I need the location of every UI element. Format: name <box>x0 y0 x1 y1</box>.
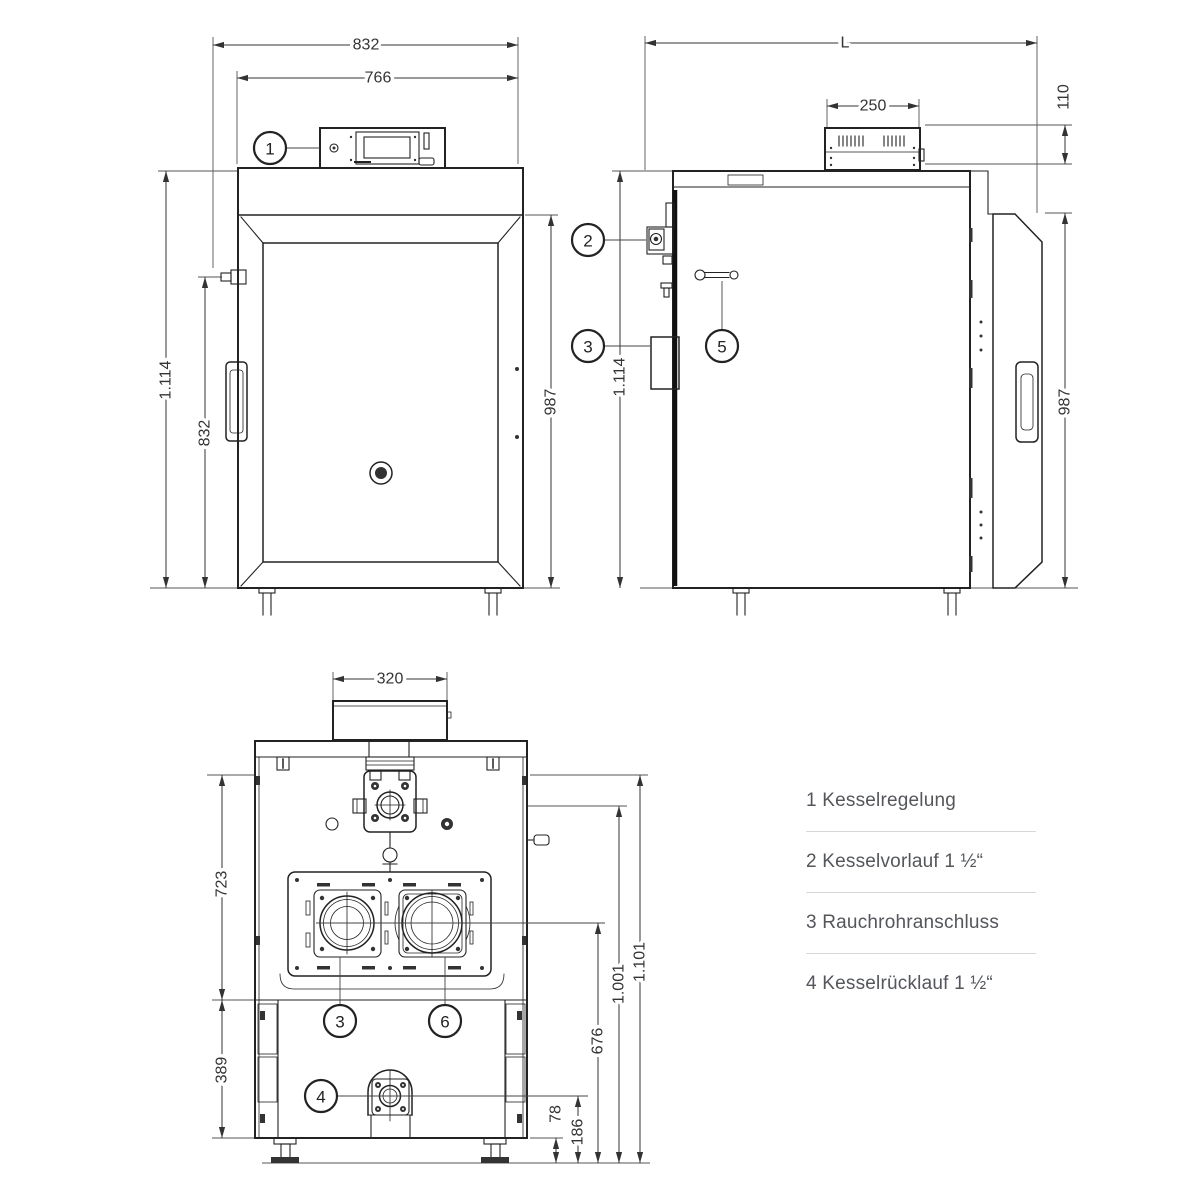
side-control-box <box>825 128 924 170</box>
front-pipe-stub-cap <box>221 273 231 281</box>
side-door-profile <box>993 214 1042 588</box>
legend-item-kesselvorlauf: 2 Kesselvorlauf 1 ½“ <box>806 832 1036 892</box>
callout-6-port: 6 <box>429 1005 461 1037</box>
callout-3-rauchrohr-rear: 3 <box>324 1005 356 1037</box>
callout-5-tuergriff: 5 <box>706 330 738 362</box>
svg-text:2: 2 <box>583 232 592 251</box>
dim-rear-ruecklauf-height: 186 <box>570 1119 587 1146</box>
dim-front-height-total: 1.114 <box>158 360 175 399</box>
side-bolt <box>661 283 672 297</box>
dim-side-control-width: 250 <box>860 98 887 115</box>
side-view: L 250 110 1.114 987 2 3 5 <box>572 35 1078 616</box>
callout-3-rauchrohr-side: 3 <box>572 330 604 362</box>
side-feet <box>733 588 960 615</box>
side-body-outline <box>673 171 970 588</box>
dim-rear-total-height: 1.101 <box>632 942 649 982</box>
front-body-outline <box>238 168 523 588</box>
vent-grille <box>839 136 863 146</box>
svg-text:3: 3 <box>583 338 592 357</box>
dim-side-height-body: 987 <box>1057 389 1074 416</box>
rear-side-plug <box>527 835 549 845</box>
dim-rear-upper-height: 723 <box>214 871 231 898</box>
svg-text:3: 3 <box>335 1013 344 1032</box>
svg-text:5: 5 <box>717 338 726 357</box>
dim-front-width-outer: 832 <box>353 37 380 54</box>
svg-text:1: 1 <box>265 140 274 159</box>
svg-text:6: 6 <box>440 1013 449 1032</box>
front-hinge-pin <box>515 367 519 371</box>
legend: 1 Kesselregelung 2 Kesselvorlauf 1 ½“ 3 … <box>806 771 1036 1014</box>
legend-item-rauchrohranschluss: 3 Rauchrohranschluss <box>806 893 1036 953</box>
boiler-control-panel <box>320 128 445 168</box>
legend-item-label: 4 Kesselrücklauf 1 ½“ <box>806 973 993 995</box>
dim-rear-flue-height: 676 <box>590 1028 607 1055</box>
dim-rear-flue-width: 320 <box>377 671 404 688</box>
rear-flue-collar <box>333 701 447 740</box>
legend-item-kesselregelung: 1 Kesselregelung <box>806 771 1036 831</box>
front-feet <box>259 588 501 615</box>
dim-side-control-height: 110 <box>1056 84 1073 110</box>
legend-item-label: 3 Rauchrohranschluss <box>806 912 999 934</box>
dim-side-length: L <box>841 35 850 52</box>
front-view: 832 766 1.114 832 987 1 <box>150 37 560 616</box>
legend-item-label: 1 Kesselregelung <box>806 790 956 812</box>
boiler-dimension-drawing: 832 766 1.114 832 987 1 <box>0 0 1200 1200</box>
dim-front-width-inner: 766 <box>365 70 392 87</box>
technical-drawing: 832 766 1.114 832 987 1 <box>0 0 1200 1200</box>
front-door-knob-center <box>375 467 387 479</box>
legend-item-kesselruecklauf: 4 Kesselrücklauf 1 ½“ <box>806 954 1036 1014</box>
dim-side-height-total: 1.114 <box>612 357 629 396</box>
dim-front-height-door: 832 <box>197 420 214 447</box>
callout-2-kesselvorlauf: 2 <box>572 224 604 256</box>
legend-item-label: 2 Kesselvorlauf 1 ½“ <box>806 851 983 873</box>
side-door-handle-inner <box>1021 374 1033 430</box>
callout-4-kesselruecklauf: 4 <box>305 1080 337 1112</box>
dim-rear-vorlauf-height: 1.001 <box>611 964 628 1004</box>
side-small-tab <box>663 256 672 264</box>
rear-feet <box>271 1138 509 1163</box>
dim-rear-bottom-offset: 78 <box>548 1105 565 1123</box>
callout-1-kesselregelung: 1 <box>254 132 286 164</box>
svg-text:4: 4 <box>316 1088 325 1107</box>
rear-view: 320 723 389 1.101 1.001 676 186 78 3 6 4 <box>207 671 650 1164</box>
side-door-vents <box>969 228 983 572</box>
side-vorlauf-fitting <box>647 227 673 254</box>
front-hinge-pin <box>515 435 519 439</box>
dim-front-height-body: 987 <box>543 389 560 416</box>
dim-rear-lower-height: 389 <box>214 1057 231 1084</box>
